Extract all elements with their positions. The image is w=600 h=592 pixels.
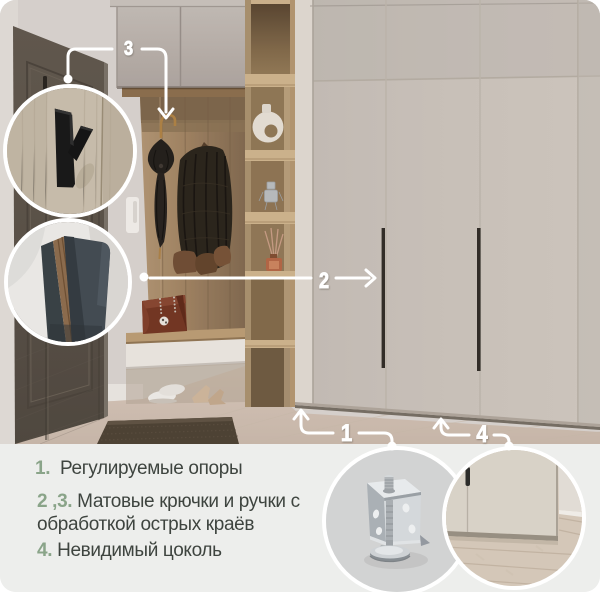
svg-text:3: 3: [124, 36, 133, 59]
svg-text:4: 4: [476, 420, 488, 447]
svg-text:1: 1: [341, 419, 352, 446]
svg-text:2: 2: [319, 269, 329, 293]
